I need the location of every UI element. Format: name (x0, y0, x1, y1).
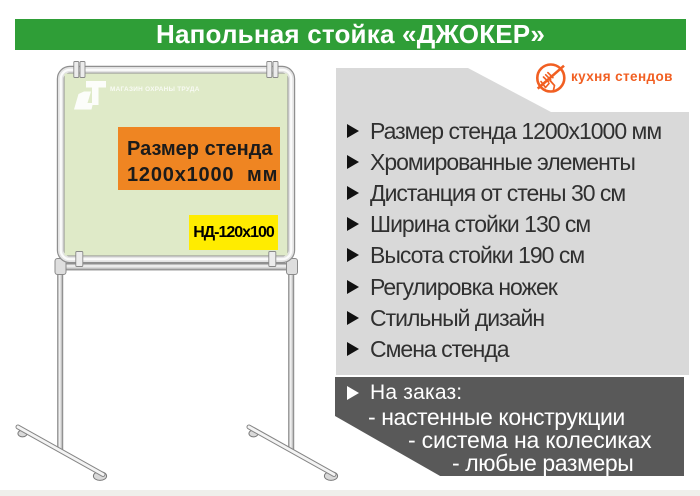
svg-text:МАГАЗИН ОХРАНЫ ТРУДА: МАГАЗИН ОХРАНЫ ТРУДА (110, 86, 200, 93)
